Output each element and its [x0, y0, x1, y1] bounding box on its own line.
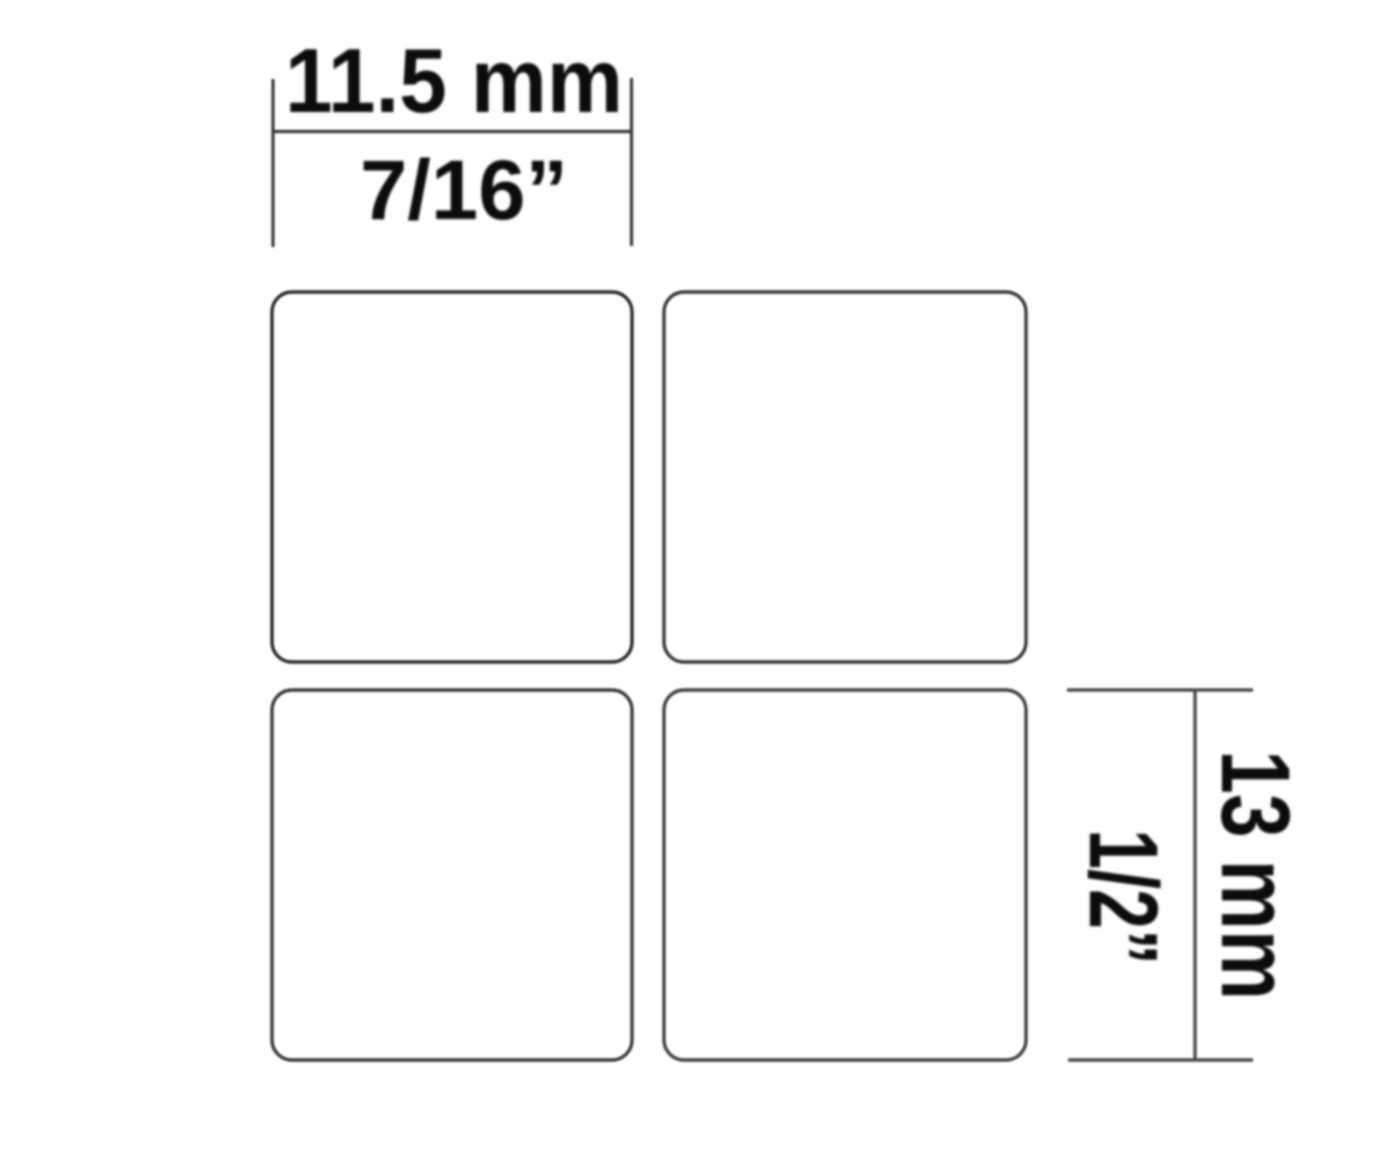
svg-text:13 mm: 13 mm [1201, 750, 1310, 1000]
svg-text:7/16”: 7/16” [360, 143, 568, 237]
svg-text:1/2”: 1/2” [1069, 829, 1178, 965]
svg-text:11.5 mm: 11.5 mm [285, 31, 623, 132]
